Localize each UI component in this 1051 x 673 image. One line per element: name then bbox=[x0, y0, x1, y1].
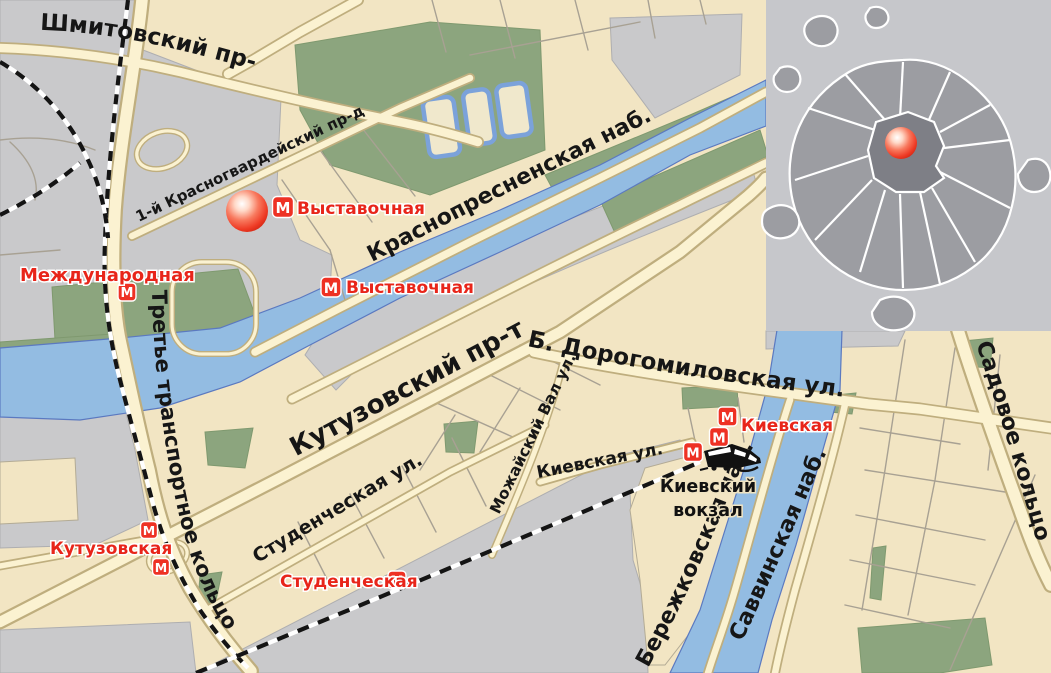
metro-icon: М bbox=[718, 407, 737, 426]
metro-icon: М bbox=[710, 428, 729, 447]
metro-icon: М bbox=[321, 277, 341, 297]
svg-text:М: М bbox=[721, 410, 734, 426]
map-screenshot: Шмитовский пр-д 1-й Красногвардейский пр… bbox=[0, 0, 1051, 673]
svg-text:М: М bbox=[324, 281, 338, 297]
station-label-kutuzovskaya: Кутузовская bbox=[50, 539, 172, 559]
station-label-vystavochnaya: Выставочная bbox=[297, 199, 425, 219]
svg-text:М: М bbox=[686, 446, 699, 462]
svg-text:М: М bbox=[121, 286, 134, 301]
metro-icon: М bbox=[684, 443, 703, 462]
city-map[interactable]: Шмитовский пр-д 1-й Красногвардейский пр… bbox=[0, 0, 1051, 673]
station-label-vystavochnaya-2: Выставочная bbox=[346, 278, 474, 298]
block bbox=[0, 458, 78, 524]
station-label-mezhdunarodnaya: Международная bbox=[20, 265, 195, 286]
svg-text:М: М bbox=[712, 431, 725, 447]
overview-inset-map bbox=[762, 0, 1051, 331]
kievsky-vokzal-label-line2: вокзал bbox=[673, 501, 743, 521]
metro-icon: М bbox=[273, 197, 294, 218]
metro-icon: М bbox=[141, 522, 158, 539]
svg-text:М: М bbox=[143, 523, 155, 538]
metro-icon: М bbox=[153, 559, 170, 576]
kievsky-vokzal-label-line1: Киевский bbox=[660, 477, 756, 497]
svg-text:М: М bbox=[276, 199, 291, 217]
location-marker bbox=[226, 190, 268, 232]
station-label-kievskaya: Киевская bbox=[741, 416, 833, 436]
svg-text:М: М bbox=[155, 560, 167, 575]
station-label-studencheskaya: Студенческая bbox=[280, 572, 418, 592]
inset-location-marker bbox=[885, 127, 917, 159]
